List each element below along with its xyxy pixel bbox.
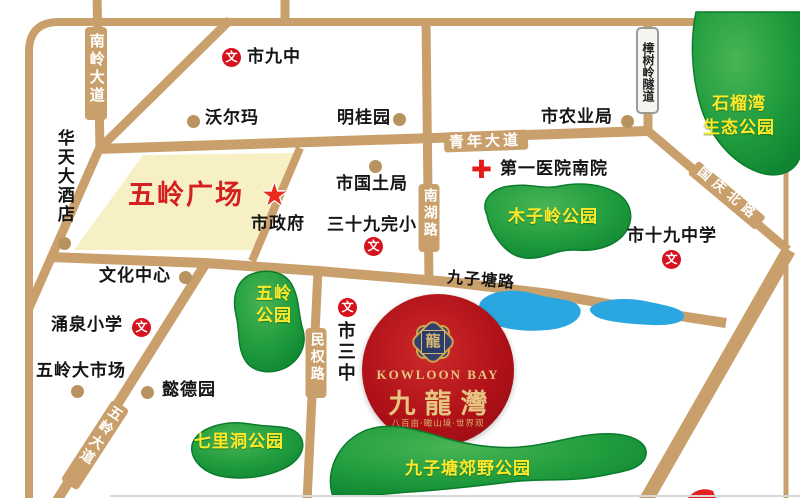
poi-dot-icon [141, 386, 154, 399]
road-label-minquan: 民权路 [309, 332, 324, 396]
school-badge-icon: 文 [132, 318, 151, 337]
poi-dot-icon [621, 115, 634, 128]
poi-shijiuzhong: 市九中 [247, 48, 301, 67]
school-badge-icon: 文 [222, 48, 241, 67]
poi-shinongyeju: 市农业局 [541, 108, 613, 127]
poi-diyiyiyuan: 第一医院南院 [500, 160, 608, 179]
poi-sanshijiuwanxiao: 三十九完小 [327, 216, 417, 235]
location-map: 龍 KOWLOON BAY 九龍灣 八百亩·瞰山境·世界观 文 市九中 沃尔玛 … [0, 0, 800, 498]
poi-shisanzhong: 市三中 [335, 321, 355, 384]
bottom-edge-line [110, 495, 800, 497]
road-label-nanling: 南岭大道 [88, 33, 104, 119]
poi-dot-icon [179, 271, 192, 284]
map-overlay-layer [0, 0, 800, 498]
park-label-wuling-2: 公园 [256, 306, 292, 326]
hospital-cross-icon: ✚ [471, 157, 492, 182]
road-label-zhangshuling-tunnel: 樟树岭隧道 [636, 27, 659, 114]
poi-wulingdashichang: 五岭大市场 [36, 362, 126, 381]
park-label-jiuzitang-country: 九子塘郊野公园 [405, 459, 531, 479]
park-label-shiliuwan-1: 石榴湾 [712, 94, 766, 114]
poi-huatianhotel: 华天大酒店 [54, 129, 73, 224]
government-star-icon: ★ [261, 181, 288, 211]
park-label-muziling: 木子岭公园 [508, 207, 598, 227]
poi-walmart: 沃尔玛 [205, 109, 259, 128]
poi-yongquanxiaoxue: 涌泉小学 [51, 316, 123, 335]
road-label-qingnian: 青年大道 [449, 133, 522, 151]
school-badge-icon: 文 [338, 298, 357, 317]
road-label-nanhu: 南湖路 [422, 188, 437, 250]
school-badge-icon: 文 [364, 237, 383, 256]
school-badge-icon: 文 [662, 250, 681, 269]
park-label-qilidong: 七里洞公园 [194, 432, 284, 452]
park-label-shiliuwan-2: 生态公园 [703, 118, 775, 138]
poi-dot-icon [71, 385, 84, 398]
poi-yideyuan: 懿德园 [162, 381, 216, 400]
plaza-label: 五岭广场 [128, 181, 244, 211]
poi-dot-icon [369, 160, 382, 173]
poi-mingguiyuan: 明桂园 [337, 109, 391, 128]
poi-shishijiuzhongxue: 市十九中学 [627, 227, 717, 246]
poi-shiguotuju: 市国土局 [336, 175, 408, 194]
poi-dot-icon [58, 237, 71, 250]
poi-wenhuazhongxin: 文化中心 [99, 267, 171, 286]
poi-shizhengfu: 市政府 [251, 215, 305, 234]
park-label-wuling-1: 五岭 [256, 284, 292, 304]
poi-dot-icon [187, 115, 200, 128]
poi-dot-icon [393, 113, 406, 126]
